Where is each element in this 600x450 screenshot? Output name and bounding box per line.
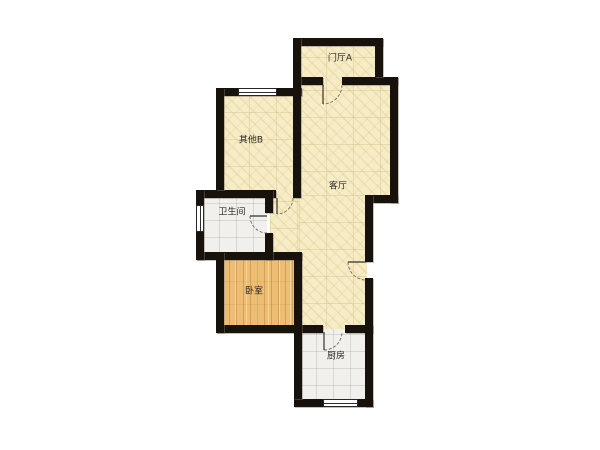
door-arc-entry-hall [323,85,342,104]
room-label-bedroom: 卧室 [245,284,263,297]
door-arc-kitchen [324,332,342,350]
room-label-living-room: 客厅 [329,179,347,192]
room-label-other-b: 其他B [239,133,263,146]
room-label-bathroom: 卫生间 [218,205,245,218]
room-label-kitchen: 厨房 [327,349,345,362]
floor-plan: 门厅A 其他B 客厅 卫生间 卧室 厨房 [0,0,600,450]
room-label-entry-hall: 门厅A [328,51,352,64]
door-arc-other-b [277,198,293,214]
door-arc-living-right [348,262,366,280]
door-arc-bathroom [250,216,267,233]
door-symbols [0,0,600,450]
